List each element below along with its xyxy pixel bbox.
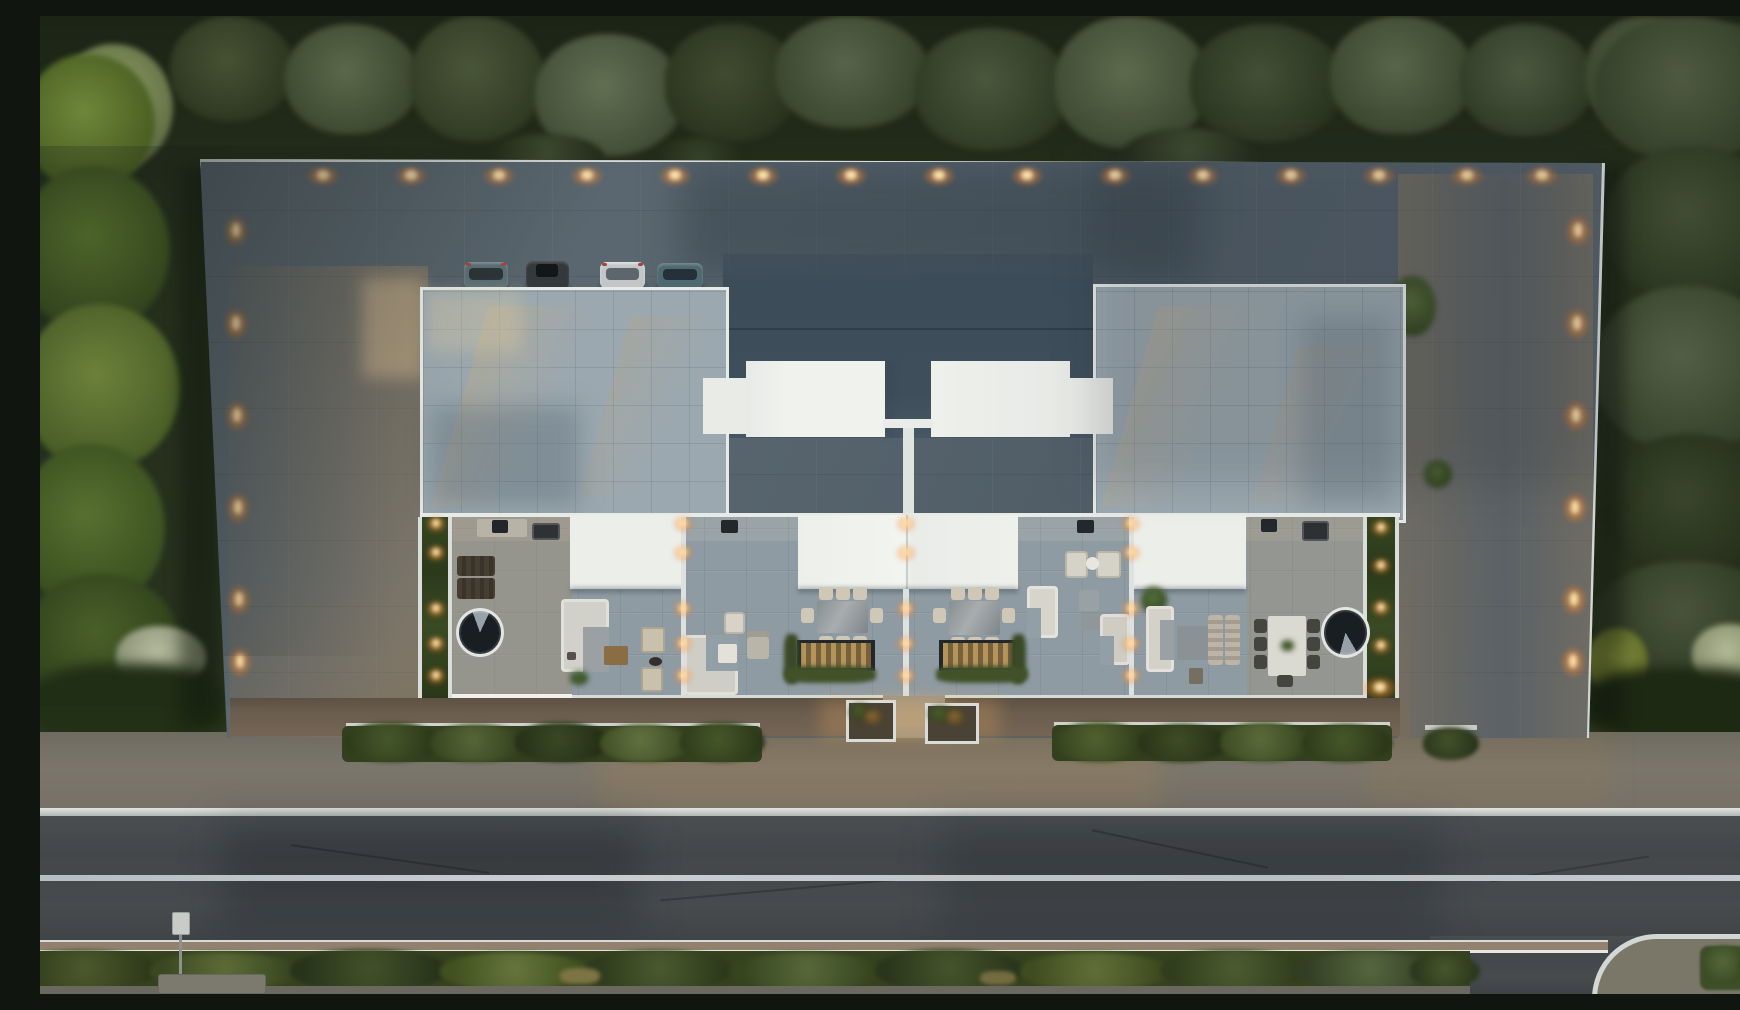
aerial-render	[40, 16, 1740, 994]
atmosphere	[40, 16, 1740, 994]
vignette	[40, 16, 1740, 994]
